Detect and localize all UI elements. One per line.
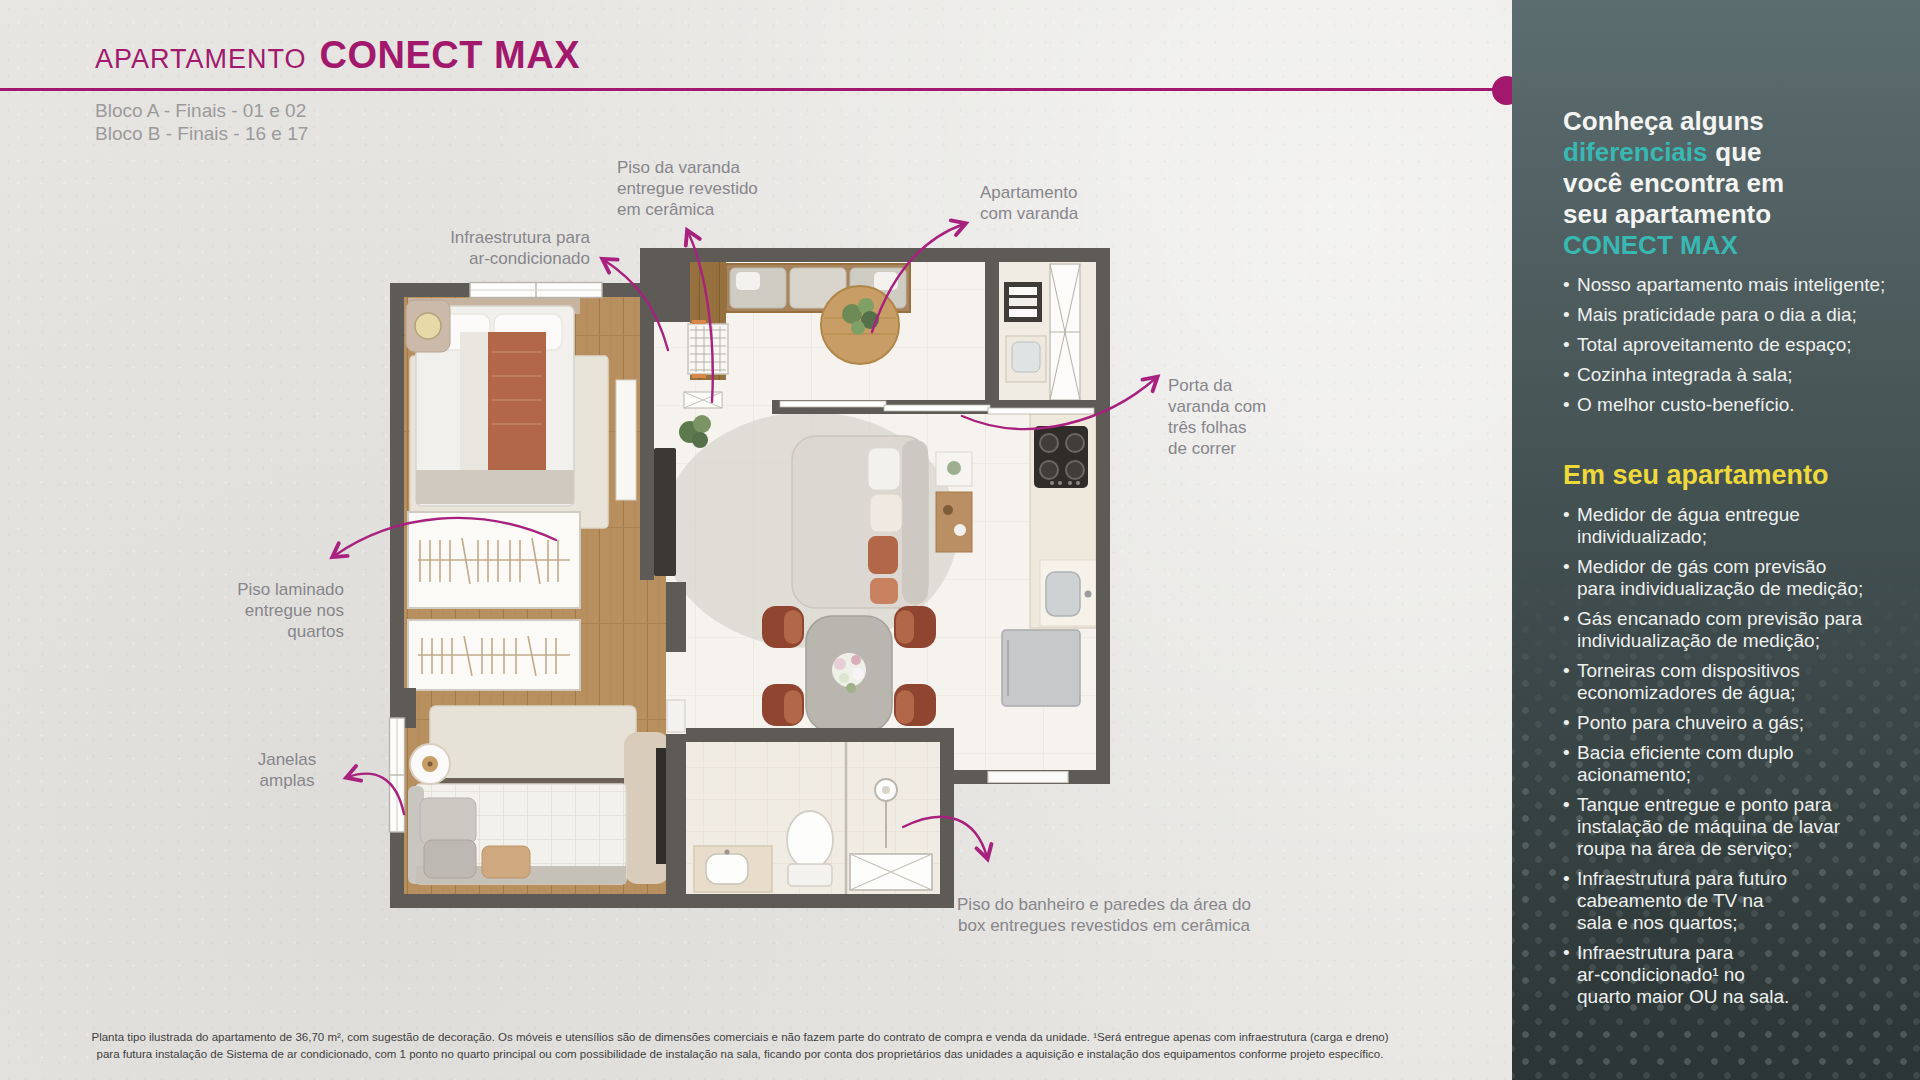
list-item: Bacia eficiente com duplo acionamento; xyxy=(1563,742,1893,786)
callout-porta-da-varanda: Porta da varanda com três folhas de corr… xyxy=(1168,375,1266,459)
bedroom-2 xyxy=(408,706,670,884)
callout-piso-laminado: Piso laminado entregue nos quartos xyxy=(144,579,344,642)
callout-infraestrutura-ar-condicionado: Infraestrutura para ar-condicionado xyxy=(340,227,590,269)
list-item: Total aproveitamento de espaço; xyxy=(1563,334,1893,356)
callout-janelas-amplas: Janelas amplas xyxy=(237,749,337,791)
list-item: Gás encanado com previsão para individua… xyxy=(1563,608,1893,652)
callout-piso-banheiro: Piso do banheiro e paredes da área do bo… xyxy=(953,894,1255,936)
intro-line-2: diferenciaisque xyxy=(1563,137,1893,168)
list-item: Medidor de água entregue individualizado… xyxy=(1563,504,1893,548)
list-item: Ponto para chuveiro a gás; xyxy=(1563,712,1893,734)
section-title-em-seu-apartamento: Em seu apartamento xyxy=(1563,460,1893,491)
list-item: Cozinha integrada à sala; xyxy=(1563,364,1893,386)
list-item: Infraestrutura para ar-condicionado¹ no … xyxy=(1563,942,1893,1008)
intro-brand-name: CONECT MAX xyxy=(1563,230,1893,261)
list-item: Nosso apartamento mais inteligente; xyxy=(1563,274,1893,296)
list-item: Mais praticidade para o dia a dia; xyxy=(1563,304,1893,326)
callout-piso-varanda: Piso da varanda entregue revestido em ce… xyxy=(617,157,758,220)
intro-highlight: diferenciais xyxy=(1563,137,1708,167)
features-sidebar: Conheça alguns diferenciaisque você enco… xyxy=(1512,0,1920,1080)
sidebar-intro-heading: Conheça alguns diferenciaisque você enco… xyxy=(1563,106,1893,261)
legal-disclaimer: Planta tipo ilustrada do apartamento de … xyxy=(60,1029,1420,1063)
callout-apartamento-com-varanda: Apartamento com varanda xyxy=(980,182,1078,224)
list-item: O melhor custo-benefício. xyxy=(1563,394,1893,416)
differentials-list: Nosso apartamento mais inteligente;Mais … xyxy=(1563,274,1893,416)
list-item: Medidor de gás com previsão para individ… xyxy=(1563,556,1893,600)
intro-line-4: seu apartamento xyxy=(1563,199,1893,230)
list-item: Tanque entregue e ponto para instalação … xyxy=(1563,794,1893,860)
intro-line-1: Conheça alguns xyxy=(1563,106,1893,137)
list-item: Torneiras com dispositivos economizadore… xyxy=(1563,660,1893,704)
list-item: Infraestrutura para futuro cabeamento de… xyxy=(1563,868,1893,934)
apartment-features-list: Medidor de água entregue individualizado… xyxy=(1563,504,1893,1008)
intro-line-3: você encontra em xyxy=(1563,168,1893,199)
